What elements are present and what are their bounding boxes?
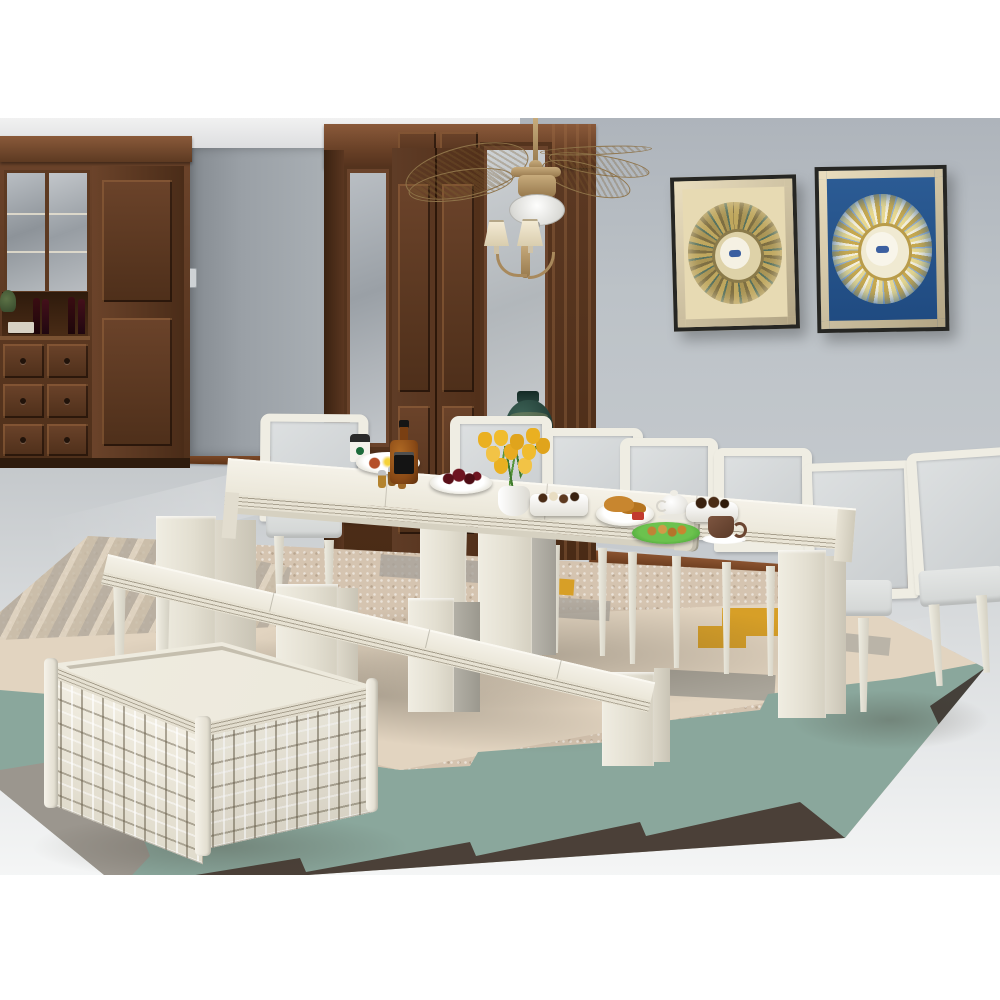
top-margin bbox=[0, 0, 1000, 118]
cup-logo bbox=[356, 447, 364, 455]
product-photo-dining-set bbox=[0, 0, 1000, 1000]
teapot-lid bbox=[670, 490, 678, 496]
shaker bbox=[378, 470, 386, 488]
potted-plant bbox=[0, 290, 16, 312]
trunk-corner-post bbox=[195, 716, 211, 856]
wine-bottle bbox=[78, 299, 85, 334]
drawer-knob bbox=[64, 437, 70, 443]
chocolates bbox=[694, 496, 730, 510]
jam-packet bbox=[632, 512, 644, 520]
tulip-heads bbox=[478, 432, 492, 448]
cabinet-plinth bbox=[0, 458, 190, 468]
drawer-knob bbox=[20, 398, 26, 404]
cookies bbox=[644, 524, 688, 538]
recessed-wall bbox=[186, 148, 326, 456]
flower-vase bbox=[498, 486, 530, 516]
bench-end-block-side bbox=[654, 668, 670, 762]
teapot-handle bbox=[656, 500, 668, 512]
trunk-corner-post bbox=[366, 678, 378, 812]
door-panel bbox=[442, 184, 474, 392]
fan-downrod bbox=[533, 118, 538, 166]
cabinet-door-panel bbox=[102, 318, 172, 446]
table-end-leg bbox=[778, 550, 826, 718]
chair-seat bbox=[918, 565, 1000, 607]
sidelight-glass-left bbox=[350, 173, 386, 443]
coffee-cup-brown bbox=[700, 514, 746, 546]
whiskey-bottle bbox=[390, 420, 418, 484]
cabinet-crown bbox=[0, 136, 192, 162]
wine-bottle bbox=[33, 298, 40, 334]
croissants bbox=[604, 496, 634, 512]
sconce-candle bbox=[494, 245, 499, 254]
bottom-margin bbox=[0, 875, 1000, 1000]
drawer-knob bbox=[20, 437, 26, 443]
cabinet-drawer bbox=[3, 424, 44, 456]
cabinet-glass-door bbox=[4, 170, 48, 294]
cabinet-drawer bbox=[47, 344, 88, 378]
croissant-plate bbox=[596, 502, 654, 526]
artwork-gold bbox=[670, 174, 800, 331]
cherries bbox=[440, 468, 482, 486]
cabinet-counter-edge bbox=[0, 336, 90, 340]
table-end-leg-side bbox=[826, 556, 846, 714]
drawer-knob bbox=[64, 358, 70, 364]
chocolates bbox=[536, 490, 582, 506]
wine-bottle bbox=[68, 297, 75, 334]
mandala-center-motif bbox=[729, 250, 741, 257]
chocolates-plate bbox=[530, 494, 588, 516]
drawer-knob bbox=[20, 358, 26, 364]
cabinet-drawer bbox=[3, 384, 44, 418]
green-cookie-plate bbox=[632, 522, 700, 544]
bottle-label bbox=[394, 452, 414, 474]
drawer-knob bbox=[64, 398, 70, 404]
cabinet-glass-door bbox=[46, 170, 90, 294]
mandala-center-motif bbox=[876, 246, 889, 253]
cabinet-drawer bbox=[47, 424, 88, 456]
artwork-blue bbox=[815, 165, 950, 333]
door-panel bbox=[398, 184, 430, 392]
cup-handle bbox=[732, 522, 747, 538]
decor-box bbox=[8, 322, 34, 333]
cabinet-door-panel bbox=[102, 180, 172, 302]
trunk-corner-post bbox=[44, 658, 58, 808]
cabinet-drawer bbox=[3, 344, 44, 378]
wine-bottle bbox=[42, 299, 49, 334]
cherries-plate bbox=[430, 472, 492, 494]
cabinet-drawer bbox=[47, 384, 88, 418]
coffee-cup bbox=[708, 516, 734, 538]
